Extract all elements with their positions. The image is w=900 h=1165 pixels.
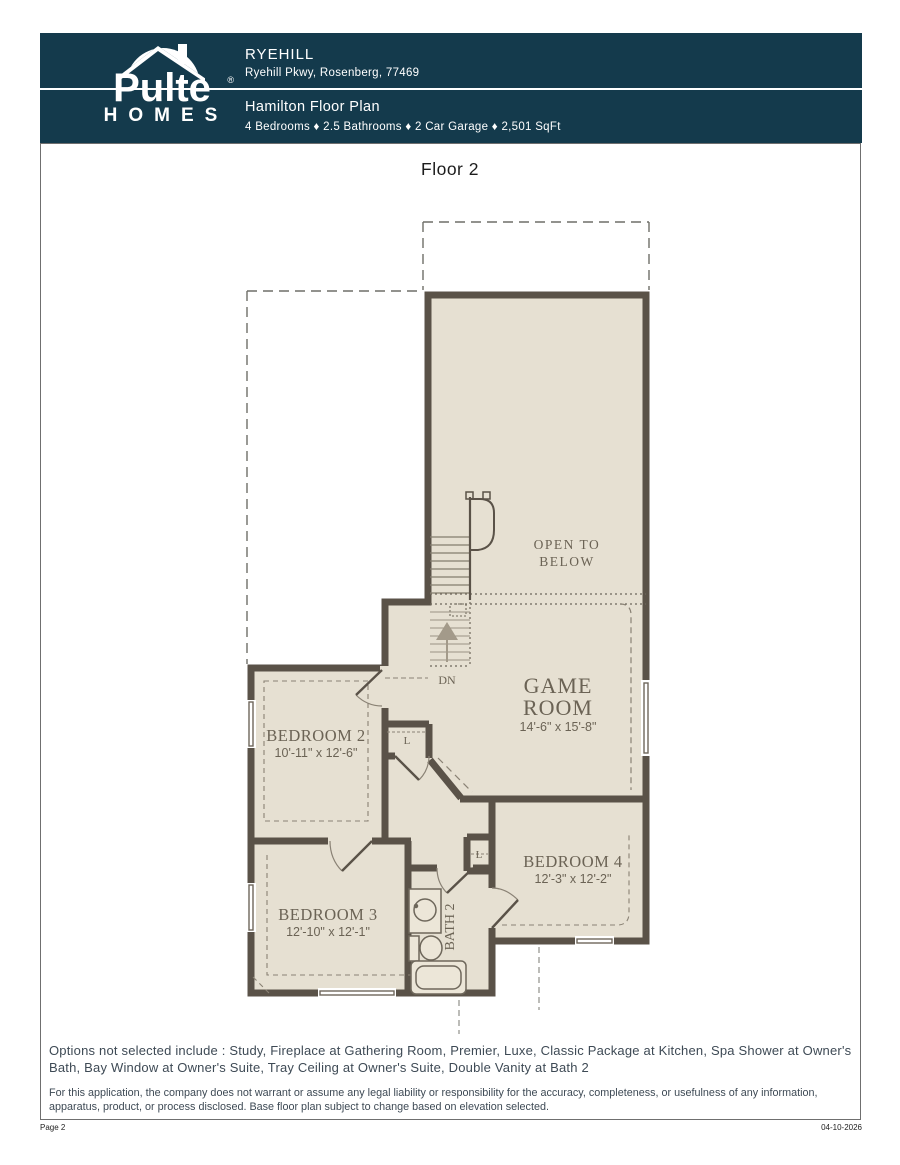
header-banner: Pulte HOMES ® RYEHILL Ryehill Pkwy, Rose… [40,33,862,143]
floor-title: Floor 2 [0,159,900,180]
disclaimer-text: For this application, the company does n… [49,1086,853,1114]
plan-specs: 4 Bedrooms ♦ 2.5 Bathrooms ♦ 2 Car Garag… [245,121,561,133]
options-not-selected-text: Options not selected include : Study, Fi… [49,1042,853,1076]
page-number: Page 2 [40,1123,65,1132]
plan-name: Hamilton Floor Plan [245,99,380,115]
document-page: OPEN TO BELOW GAME ROOM BEDROOM 2 BEDROO… [0,0,900,1165]
content-border [40,143,861,1120]
community-address: Ryehill Pkwy, Rosenberg, 77469 [245,67,419,79]
registered-mark: ® [227,75,234,85]
header-divider [40,88,862,90]
date-stamp: 04-10-2026 [821,1123,862,1132]
community-name: RYEHILL [245,46,314,63]
logo-homes-text: HOMES [70,105,262,127]
